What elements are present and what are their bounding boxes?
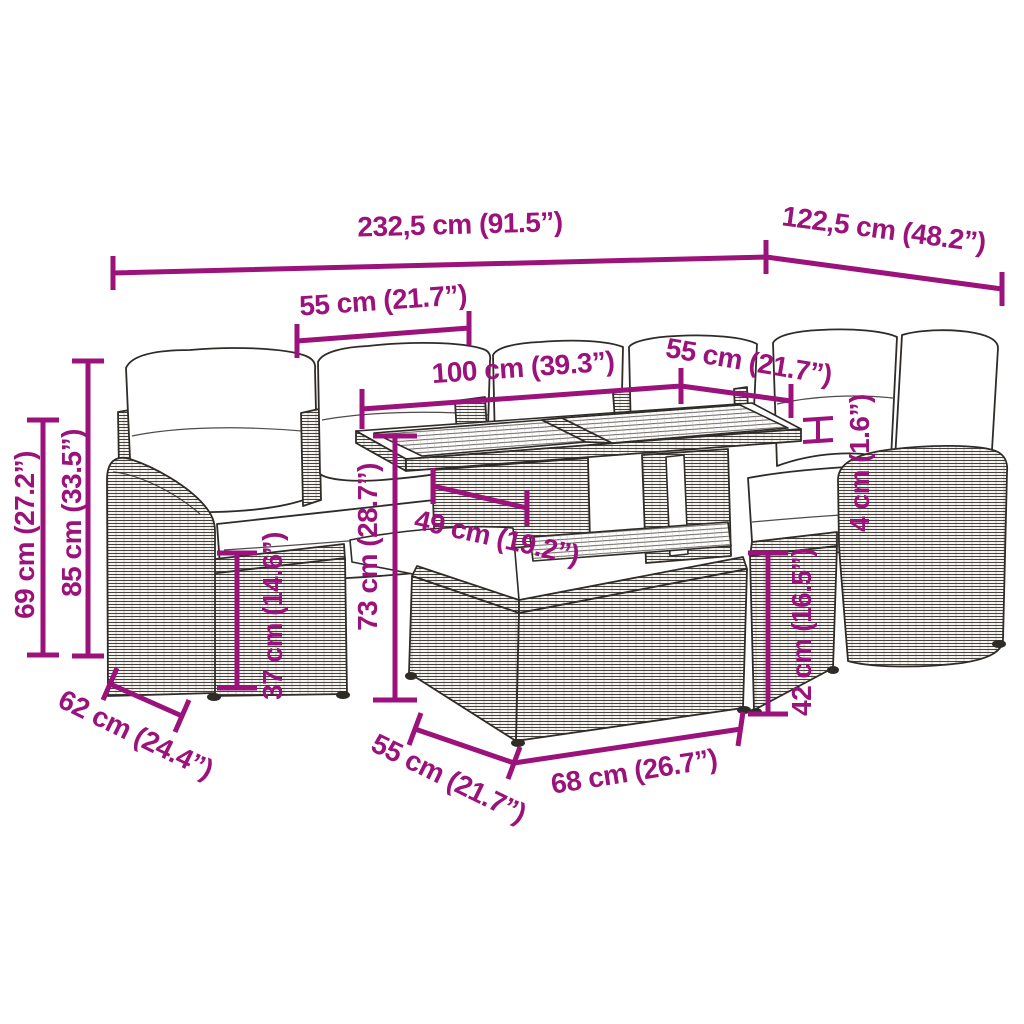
dim-overall-width: 232,5 cm (91.5”): [113, 206, 766, 290]
foot: [992, 640, 1006, 648]
dim-back-height: 85 cm (33.5”): [56, 361, 104, 656]
foot: [207, 693, 221, 701]
dim-label: 62 cm (24.4”): [54, 684, 218, 785]
dim-label: 85 cm (33.5”): [56, 429, 87, 597]
dim-label: 122,5 cm (48.2”): [780, 200, 988, 258]
dim-label: 73 cm (28.7”): [352, 463, 383, 631]
furniture-dimension-diagram: 232,5 cm (91.5”) 122,5 cm (48.2”) 55 cm …: [0, 0, 1024, 1024]
dim-arm-height: 69 cm (27.2”): [9, 420, 59, 655]
dim-overall-depth: 122,5 cm (48.2”): [766, 200, 1002, 306]
dim-label: 68 cm (26.7”): [549, 743, 720, 800]
back-post: [301, 409, 321, 506]
dim-label: 4 cm (1.6”): [844, 394, 875, 532]
dim-label: 37 cm (14.6”): [257, 532, 288, 700]
ottoman: [405, 557, 751, 747]
dim-label: 55 cm (21.7”): [298, 279, 468, 322]
foot: [827, 666, 839, 674]
dim-label: 42 cm (16.5”): [786, 548, 817, 716]
foot: [405, 672, 417, 680]
dimension-diagram-page: 232,5 cm (91.5”) 122,5 cm (48.2”) 55 cm …: [0, 0, 1024, 1024]
dim-label: 69 cm (27.2”): [9, 451, 40, 619]
foot: [511, 739, 525, 747]
dim-label: 232,5 cm (91.5”): [357, 206, 563, 242]
foot: [336, 691, 350, 699]
